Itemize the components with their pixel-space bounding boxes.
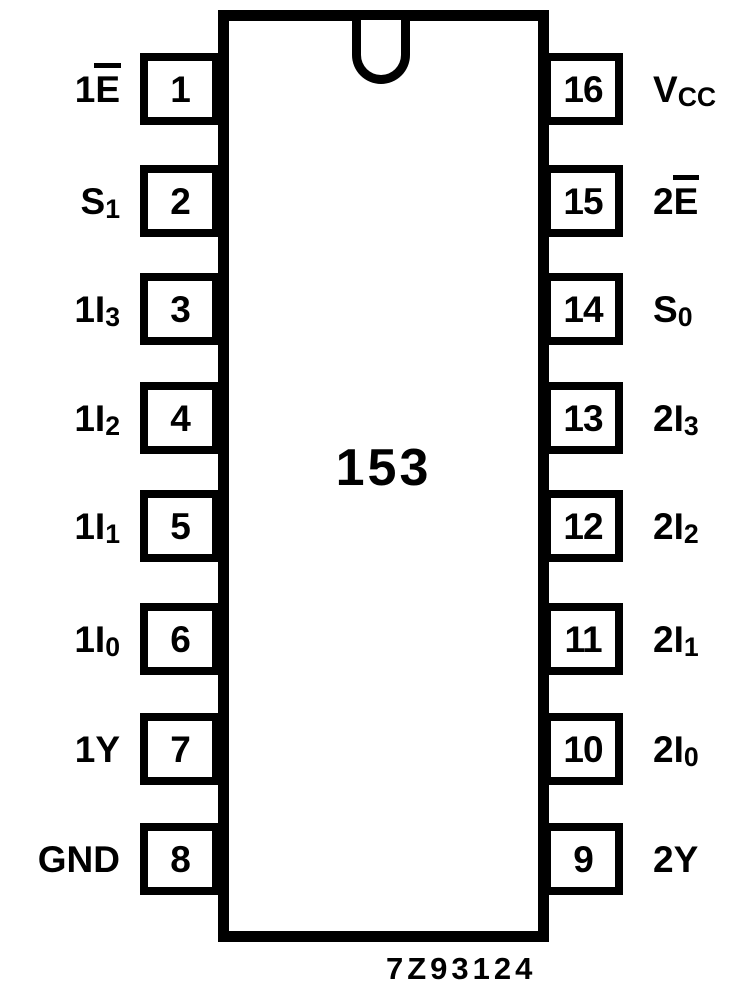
pin-15-number: 15 — [563, 183, 602, 220]
pinout-diagram: 153 1E 1 S1 2 1I3 3 1I2 4 1I1 5 1I0 6 1Y… — [0, 0, 753, 1000]
pin-6-box: 6 — [140, 603, 220, 675]
pin-9-box: 9 — [543, 823, 623, 895]
pin-10-number: 10 — [563, 731, 602, 768]
pin-8-box: 8 — [140, 823, 220, 895]
pin-row-9: 9 2Y — [0, 823, 753, 895]
pin-13-number: 13 — [563, 400, 602, 437]
pin-16-number: 16 — [563, 71, 602, 108]
pin-10-box: 10 — [543, 713, 623, 785]
pin-11-label: 2I1 — [653, 603, 753, 675]
pin-2-box: 2 — [140, 165, 220, 237]
pin-13-box: 13 — [543, 382, 623, 454]
pin-15-box: 15 — [543, 165, 623, 237]
pin-5-number: 5 — [170, 508, 190, 545]
pin-14-number: 14 — [563, 291, 602, 328]
pin-12-box: 12 — [543, 490, 623, 562]
pin-7-number: 7 — [170, 731, 190, 768]
pin-1-number: 1 — [170, 71, 190, 108]
pin-11-box: 11 — [543, 603, 623, 675]
pin-row-12: 12 2I2 — [0, 490, 753, 562]
pin-3-box: 3 — [140, 273, 220, 345]
pin-row-10: 10 2I0 — [0, 713, 753, 785]
pin-row-11: 11 2I1 — [0, 603, 753, 675]
drawing-code: 7Z93124 — [386, 951, 536, 987]
pin-5-box: 5 — [140, 490, 220, 562]
pin-16-label: VCC — [653, 53, 753, 125]
pin-7-box: 7 — [140, 713, 220, 785]
pin-14-label: S0 — [653, 273, 753, 345]
pin-15-label: 2E — [653, 165, 753, 237]
pin-4-box: 4 — [140, 382, 220, 454]
pin-11-number: 11 — [564, 621, 601, 658]
pin-4-number: 4 — [170, 400, 190, 437]
pin-8-number: 8 — [170, 841, 190, 878]
pin-12-number: 12 — [563, 508, 602, 545]
pin-6-number: 6 — [170, 621, 190, 658]
pin-16-box: 16 — [543, 53, 623, 125]
pin-13-label: 2I3 — [653, 382, 753, 454]
pin-1-box: 1 — [140, 53, 220, 125]
pin-9-number: 9 — [573, 841, 593, 878]
pin-2-number: 2 — [170, 183, 190, 220]
pin-9-label: 2Y — [653, 823, 753, 895]
part-number: 153 — [218, 438, 549, 498]
pin-12-label: 2I2 — [653, 490, 753, 562]
pin-3-number: 3 — [170, 291, 190, 328]
pin-14-box: 14 — [543, 273, 623, 345]
pin1-index-notch-icon — [352, 20, 410, 84]
pin-row-14: 14 S0 — [0, 273, 753, 345]
pin-row-15: 15 2E — [0, 165, 753, 237]
pin-10-label: 2I0 — [653, 713, 753, 785]
